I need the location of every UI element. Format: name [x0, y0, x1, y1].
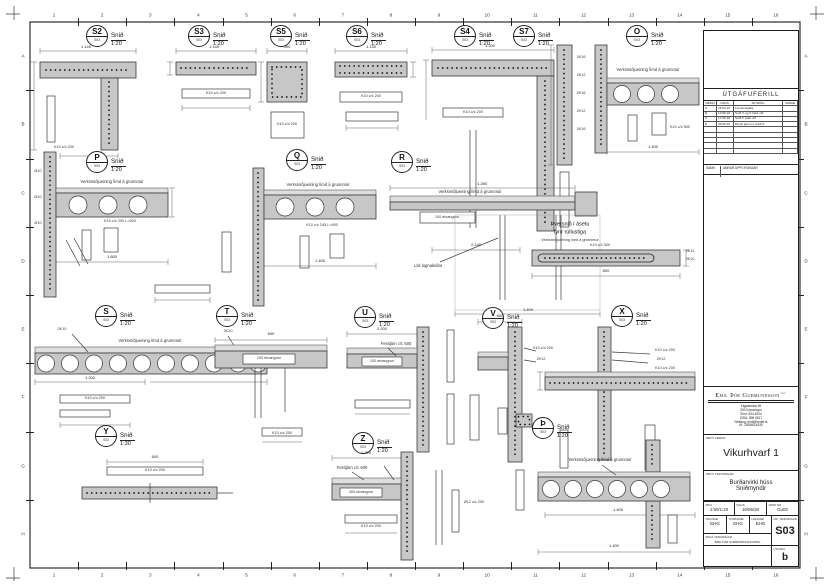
- drawing-title-section: HEITI TEIKNINGAR: Burðarvirki húss Sniðm…: [704, 471, 798, 501]
- firm-suffix: ehf.: [781, 391, 787, 395]
- grid-tick: [319, 562, 320, 570]
- stamp-rule: [708, 400, 794, 403]
- annotation-text: K10 c/c 200: [85, 397, 105, 401]
- grid-column-number: 13: [629, 573, 634, 578]
- section-scale: 1:30: [120, 442, 135, 448]
- annotation-text: 1.400: [315, 259, 325, 263]
- grid-tick: [78, 18, 79, 26]
- grid-column-number: 8: [390, 573, 393, 578]
- grid-row-letter: F: [805, 395, 808, 400]
- section-label: Snið1:20: [377, 432, 392, 455]
- grid-column-number: 11: [533, 13, 538, 18]
- section-label: Snið1:20: [557, 417, 572, 440]
- title-block-fields: MKV. 1:50/1:20 DAGS. 16/06/30 VERK NR. G…: [704, 501, 798, 566]
- scale-value: 1:50/1:20: [704, 507, 734, 512]
- firm-name: Emil Þór Guðmundssonehf.: [704, 391, 798, 399]
- grid-column-number: 10: [485, 13, 490, 18]
- section-word: Snið: [416, 159, 431, 167]
- issue-field: ÚTGÁFA b: [772, 546, 798, 567]
- grid-tick: [559, 18, 560, 26]
- grid-tick: [26, 363, 34, 364]
- section-scale: 1:20: [120, 322, 135, 328]
- grid-row-letter: B: [804, 122, 807, 127]
- annotation-text: Ø10: [34, 170, 41, 174]
- section-marker-s: SS03Snið1:20: [95, 305, 117, 327]
- grid-tick: [415, 18, 416, 26]
- section-marker-divider: [86, 162, 108, 163]
- annotation-text: Þversnið í ásetu: [551, 222, 590, 227]
- annotation-text: K10 c/c 200: [463, 111, 483, 115]
- title-block: ÚTGÁFUFERILL MERKIDAGS.SKÝRINGANNAÐA25.0…: [703, 30, 799, 567]
- annotation-text: Verksmiðjueining límd á grunnmúr: [616, 68, 679, 72]
- annotation-text: 2K10: [686, 258, 695, 262]
- section-scale: 1:20: [507, 324, 522, 330]
- annotation-text: 2K12: [686, 250, 695, 254]
- grid-tick: [26, 159, 34, 160]
- grid-column-number: 6: [293, 13, 296, 18]
- annotation-text: K10 c/c 200: [361, 525, 381, 529]
- annotation-text: K10 c/c 300: [590, 244, 610, 248]
- annotation-text: K10 c/c 200: [655, 367, 675, 371]
- section-scale: 1:20: [416, 168, 431, 174]
- grid-column-number: 1: [53, 573, 56, 578]
- section-sheet-ref: S03: [513, 38, 535, 42]
- annotation-text: 100 einangrun: [257, 357, 281, 361]
- section-marker-divider: [216, 316, 238, 317]
- grid-column-number: 14: [677, 573, 682, 578]
- drawing-title-label: HEITI TEIKNINGAR:: [706, 472, 734, 476]
- grid-tick: [174, 18, 175, 26]
- grid-column-number: 13: [629, 13, 634, 18]
- section-marker-divider: [270, 36, 292, 37]
- section-word: Snið: [557, 425, 572, 433]
- revision-cell: [783, 149, 798, 154]
- section-marker-divider: [95, 316, 117, 317]
- section-marker-s3: S3S03Snið1:20: [188, 25, 210, 47]
- section-marker-q: QS03Snið1:20: [286, 149, 308, 171]
- annotation-text: Ø12 c/c 200: [464, 501, 484, 505]
- grid-tick: [367, 562, 368, 570]
- annotation-text: 1.400: [609, 544, 619, 548]
- grid-column-number: 3: [149, 573, 152, 578]
- grid-column-number: 15: [725, 573, 730, 578]
- grid-column-number: 16: [773, 573, 778, 578]
- section-label: Snið1:20: [241, 305, 256, 328]
- section-sheet-ref: S03: [354, 319, 376, 323]
- project-name: Vikurhvarf 1: [704, 447, 798, 459]
- title-block-logo-area: [704, 31, 798, 89]
- grid-row-letter: D: [21, 258, 24, 263]
- drawn-field: TEIKNAÐ EHG: [704, 516, 727, 534]
- section-scale: 1:20: [538, 42, 553, 48]
- scale-field: MKV. 1:50/1:20: [704, 502, 735, 516]
- grid-tick: [26, 295, 34, 296]
- grid-tick: [26, 227, 34, 228]
- grid-row-letter: H: [804, 531, 807, 536]
- section-letter: R: [391, 153, 413, 162]
- grid-tick: [223, 562, 224, 570]
- file-value: EMIL ÞÓR GUÐMUNDSSON.DWG: [704, 540, 771, 544]
- annotation-text: K10 c/c 500: [670, 126, 690, 130]
- grid-column-number: 1: [53, 13, 56, 18]
- grid-row-letter: E: [804, 327, 807, 332]
- file-field: SKRÁ TEIKNINGAR EMIL ÞÓR GUÐMUNDSSON.DWG: [704, 534, 772, 546]
- section-word: Snið: [111, 159, 126, 167]
- annotation-text: 600: [497, 314, 504, 318]
- section-marker-divider: [391, 162, 413, 163]
- section-sheet-ref: S03: [188, 38, 210, 42]
- annotation-text: 1.400: [523, 308, 533, 312]
- annotation-text: K10 c/c 200: [54, 146, 74, 150]
- section-letter: P: [86, 153, 108, 162]
- annotation-text: K10 c/c 200: [277, 123, 297, 127]
- annotation-text: 1.200: [361, 451, 371, 455]
- annotation-text: 1.200: [377, 327, 387, 331]
- annotation-text: 1.400: [648, 145, 658, 149]
- annotation-text: 600: [268, 332, 275, 336]
- grid-column-number: 4: [197, 573, 200, 578]
- grid-tick: [608, 562, 609, 570]
- annotation-text: Verksmiðjueining límd á grunnmúr: [286, 183, 349, 187]
- drawing-sheet: { "frame": { "columns": ["1","2","3","4"…: [0, 0, 830, 587]
- section-word: Snið: [111, 33, 126, 41]
- designed-value: EHG: [750, 521, 771, 526]
- firm-address-lines: Lágasmára 36200 KópavogurSími: 544 4004G…: [704, 405, 798, 428]
- grid-column-number: 14: [677, 13, 682, 18]
- section-letter: U: [354, 308, 376, 317]
- annotation-text: 2K10: [58, 328, 67, 332]
- annotation-text: 2K10: [224, 330, 233, 334]
- grid-column-number: 2: [101, 573, 104, 578]
- grid-tick: [174, 562, 175, 570]
- blank-field: [704, 546, 772, 567]
- grid-column-number: 5: [245, 573, 248, 578]
- section-letter: S5: [270, 27, 292, 36]
- section-scale: 1:20: [636, 322, 651, 328]
- annotation-text: 2K16: [577, 128, 586, 132]
- grid-tick: [26, 90, 34, 91]
- grid-column-number: 15: [725, 13, 730, 18]
- revision-cell: [704, 149, 717, 154]
- section-letter: Þ: [532, 419, 554, 428]
- section-word: Snið: [311, 157, 326, 165]
- annotation-text: 800: [603, 269, 610, 273]
- section-label: Snið1:20: [111, 25, 126, 48]
- revision-cell: [717, 149, 734, 154]
- section-marker-divider: [352, 443, 374, 444]
- date-field: DAGS. 16/06/30: [735, 502, 767, 516]
- section-letter: Z: [352, 434, 374, 443]
- annotation-text: 2K16: [577, 56, 586, 60]
- section-letter: S: [95, 307, 117, 316]
- grid-row-letter: F: [22, 395, 25, 400]
- section-marker-y: YS03Snið1:30: [95, 425, 117, 447]
- section-sheet-ref: S03: [454, 38, 476, 42]
- annotation-text: 2K12: [537, 358, 546, 362]
- section-letter: S3: [188, 27, 210, 36]
- grid-row-letter: A: [21, 54, 24, 59]
- annotation-text: 2K12: [577, 110, 586, 114]
- section-marker-divider: [86, 36, 108, 37]
- annotation-text: K10 c/c 245 L=900: [306, 224, 338, 228]
- section-sheet-ref: S03: [86, 38, 108, 42]
- section-sheet-ref: S03: [391, 164, 413, 168]
- annotation-text: Lok lagnaleiðar: [414, 264, 442, 268]
- revision-history-title: ÚTGÁFUFERILL: [704, 89, 798, 101]
- section-word: Snið: [538, 33, 553, 41]
- section-word: Snið: [241, 313, 256, 321]
- section-marker-divider: [626, 36, 648, 37]
- section-marker-divider: [513, 36, 535, 37]
- section-sheet-ref: S03: [626, 38, 648, 42]
- grid-column-number: 2: [101, 13, 104, 18]
- grid-row-letter: E: [21, 327, 24, 332]
- annotation-text: 400: [284, 45, 291, 49]
- section-word: Snið: [507, 315, 522, 323]
- section-marker-p: PS03Snið1:20: [86, 151, 108, 173]
- section-marker-divider: [286, 160, 308, 161]
- grid-column-number: 11: [533, 573, 538, 578]
- grid-tick: [511, 562, 512, 570]
- section-label: Snið1:30: [120, 425, 135, 448]
- grid-column-number: 10: [485, 573, 490, 578]
- annotation-text: 2K16: [577, 92, 586, 96]
- section-sheet-ref: S03: [611, 318, 633, 322]
- grid-column-number: 4: [197, 13, 200, 18]
- section-marker-v: VS03Snið1:20: [482, 307, 504, 329]
- section-word: Snið: [120, 313, 135, 321]
- grid-tick: [704, 18, 705, 26]
- section-scale: 1:20: [377, 449, 392, 455]
- annotation-text: Ø10: [34, 196, 41, 200]
- approved-label: SAMÞ.: [706, 166, 716, 170]
- annotation-text: 2K12: [577, 74, 586, 78]
- drawing-number-value: S03: [772, 525, 798, 537]
- section-letter: O: [626, 27, 648, 36]
- section-letter: Y: [95, 427, 117, 436]
- grid-row-letter: G: [804, 463, 808, 468]
- annotation-text: K10 c/c 200: [533, 347, 553, 351]
- section-label: Snið1:20: [111, 151, 126, 174]
- section-word: Snið: [377, 440, 392, 448]
- grid-column-number: 3: [149, 13, 152, 18]
- section-word: Snið: [120, 433, 135, 441]
- grid-tick: [126, 562, 127, 570]
- annotation-text: K10 c/c 200: [206, 92, 226, 96]
- annotation-text: Festijárn c/c 600: [337, 466, 368, 470]
- grid-tick: [559, 562, 560, 570]
- section-label: Snið1:20: [636, 305, 651, 328]
- grid-tick: [319, 18, 320, 26]
- section-word: Snið: [479, 33, 494, 41]
- section-letter: S6: [346, 27, 368, 36]
- revision-cell: [734, 149, 783, 154]
- annotation-text: 1.140: [81, 45, 91, 49]
- annotation-text: K10 c/c 200 L=900: [104, 220, 136, 224]
- annotation-text: 2K12: [657, 358, 666, 362]
- checked-field: YFIRFARIÐ EHG: [727, 516, 750, 534]
- grid-tick: [656, 562, 657, 570]
- designed-field: HANNAÐ EHG: [750, 516, 772, 534]
- annotation-text: Festijárn c/c 600: [381, 342, 412, 346]
- revision-table: MERKIDAGS.SKÝRINGANNAÐA25.04.16Fyrsta út…: [704, 101, 798, 164]
- grid-tick: [463, 562, 464, 570]
- section-label: Snið1:20: [295, 25, 310, 48]
- grid-tick: [415, 562, 416, 570]
- checked-value: EHG: [727, 521, 749, 526]
- firm-address-line: Kt. 230565-4939: [704, 424, 798, 428]
- section-marker-t: TS03Snið1:20: [216, 305, 238, 327]
- grid-row-letter: B: [21, 122, 24, 127]
- annotation-text: 100 einangrun: [370, 360, 394, 364]
- grid-row-letter: C: [21, 190, 24, 195]
- section-marker-divider: [188, 36, 210, 37]
- section-sheet-ref: S03: [270, 38, 292, 42]
- grid-tick: [26, 500, 34, 501]
- annotation-text: 1.200: [485, 44, 495, 48]
- section-word: Snið: [371, 33, 386, 41]
- annotation-text: K10 c/c 200: [361, 95, 381, 99]
- grid-row-letter: D: [804, 258, 807, 263]
- annotation-text: 1.400: [613, 508, 623, 512]
- grid-column-number: 5: [245, 13, 248, 18]
- section-scale: 1:20: [651, 42, 666, 48]
- annotation-text: 1.200: [85, 376, 95, 380]
- annotation-text: Verksmiðjueining límd á grunnmúr: [568, 458, 631, 462]
- revision-grid: MERKIDAGS.SKÝRINGANNAÐA25.04.16Fyrsta út…: [704, 101, 798, 154]
- grid-row-letter: C: [804, 190, 807, 195]
- job-number-value: Gu03: [767, 507, 798, 512]
- grid-tick: [26, 432, 34, 433]
- grid-column-number: 6: [293, 573, 296, 578]
- section-letter: S7: [513, 27, 535, 36]
- section-marker-s7: S7S03Snið1:20: [513, 25, 535, 47]
- drawing-number-field: NR. TEIKNINGAR S03: [772, 516, 798, 546]
- section-word: Snið: [295, 33, 310, 41]
- section-label: Snið1:20: [311, 149, 326, 172]
- section-sheet-ref: S03: [482, 320, 504, 324]
- annotation-text: 400 einangrun: [349, 491, 373, 495]
- section-marker-r: RS03Snið1:20: [391, 151, 413, 173]
- grid-column-number: 12: [581, 13, 586, 18]
- section-marker-s6: S6S03Snið1:20: [346, 25, 368, 47]
- section-marker-divider: [354, 317, 376, 318]
- grid-row-letter: G: [21, 463, 25, 468]
- grid-column-number: 8: [390, 13, 393, 18]
- annotation-text: Ø10: [34, 222, 41, 226]
- engineer-stamp: Emil Þór Guðmundssonehf. Lágasmára 36200…: [704, 387, 798, 435]
- approval-row: SAMÞ. AÐRAR UPPLÝSINGAR: [704, 164, 798, 175]
- section-sheet-ref: S03: [352, 445, 374, 449]
- section-label: Snið1:20: [651, 25, 666, 48]
- annotation-text: Verksmiðjueining límd á grunnmúr: [80, 180, 143, 184]
- title-block-spacer: [704, 175, 798, 387]
- annotation-text: 100 einangrun: [435, 216, 459, 220]
- grid-tick: [78, 562, 79, 570]
- section-label: Snið1:20: [538, 25, 553, 48]
- drawing-title-line2: Sniðmyndir: [704, 486, 798, 492]
- job-number-field: VERK NR. Gu03: [767, 502, 798, 516]
- annotation-text: 600: [152, 455, 159, 459]
- annotation-text: K10 c/c 200: [272, 432, 292, 436]
- section-word: Snið: [636, 313, 651, 321]
- grid-tick: [511, 18, 512, 26]
- annotation-text: 1.130: [366, 45, 376, 49]
- section-label: Snið1:20: [507, 307, 522, 330]
- section-sheet-ref: S03: [532, 430, 554, 434]
- section-word: Snið: [651, 33, 666, 41]
- grid-tick: [752, 18, 753, 26]
- section-marker-divider: [611, 316, 633, 317]
- grid-column-number: 9: [438, 13, 441, 18]
- section-letter: T: [216, 307, 238, 316]
- section-sheet-ref: S03: [95, 318, 117, 322]
- project-label: HEITI VERKS:: [706, 436, 726, 440]
- section-marker-o: OS03Snið1:20: [626, 25, 648, 47]
- section-sheet-ref: S03: [86, 164, 108, 168]
- section-letter: X: [611, 307, 633, 316]
- section-letter: S4: [454, 27, 476, 36]
- project-section: HEITI VERKS: Vikurhvarf 1: [704, 435, 798, 471]
- section-letter: S2: [86, 27, 108, 36]
- section-scale: 1:20: [111, 168, 126, 174]
- section-sheet-ref: S03: [216, 318, 238, 322]
- grid-column-number: 9: [438, 573, 441, 578]
- annotation-text: fyrir rúllustiga: [554, 230, 586, 235]
- grid-tick: [271, 562, 272, 570]
- section-word: Snið: [379, 314, 394, 322]
- date-value: 16/06/30: [735, 507, 766, 512]
- section-marker-divider: [95, 436, 117, 437]
- annotation-text: Verksmiðjueining límd á grunnmúr: [438, 190, 501, 194]
- annotation-text: 1.800: [107, 255, 117, 259]
- section-word: Snið: [213, 33, 228, 41]
- annotation-text: 1.280: [477, 182, 487, 186]
- section-letter: Q: [286, 151, 308, 160]
- grid-column-number: 16: [773, 13, 778, 18]
- annotation-text: Verksmiðjueining límd á grunnmúr: [118, 339, 181, 343]
- section-scale: 1:20: [311, 166, 326, 172]
- section-marker-divider: [346, 36, 368, 37]
- annotation-text: K10 c/c 200: [655, 349, 675, 353]
- grid-column-number: 7: [342, 573, 345, 578]
- section-marker-þ: ÞS03Snið1:20: [532, 417, 554, 439]
- section-scale: 1:20: [241, 322, 256, 328]
- section-label: Snið1:20: [416, 151, 431, 174]
- issue-value: b: [772, 552, 798, 563]
- annotation-text: K10 c/c 200: [145, 469, 165, 473]
- section-scale: 1:20: [295, 42, 310, 48]
- grid-column-number: 7: [342, 13, 345, 18]
- section-marker-s4: S4S03Snið1:20: [454, 25, 476, 47]
- section-sheet-ref: S03: [95, 438, 117, 442]
- grid-column-number: 12: [581, 573, 586, 578]
- annotation-text: 1.140: [209, 45, 219, 49]
- grid-row-letter: H: [21, 531, 24, 536]
- section-scale: 1:20: [111, 42, 126, 48]
- section-marker-divider: [532, 428, 554, 429]
- section-marker-u: US03Snið1:20: [354, 306, 376, 328]
- drawn-value: EHG: [704, 521, 726, 526]
- section-sheet-ref: S03: [346, 38, 368, 42]
- annotation-text: 2.140: [471, 243, 481, 247]
- section-scale: 1:20: [557, 434, 572, 440]
- section-sheet-ref: S03: [286, 162, 308, 166]
- grid-tick: [608, 18, 609, 26]
- section-label: Snið1:20: [120, 305, 135, 328]
- section-marker-x: XS03Snið1:20: [611, 305, 633, 327]
- section-marker-divider: [454, 36, 476, 37]
